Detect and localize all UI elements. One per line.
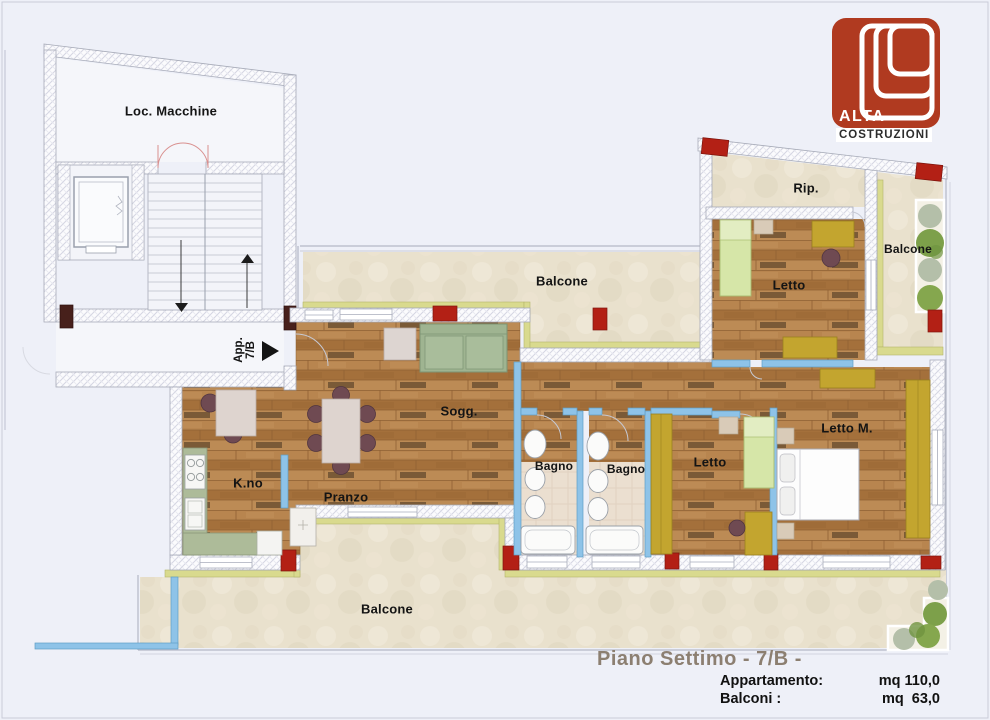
service-door bbox=[60, 305, 73, 328]
room-label-loc-macchine: Loc. Macchine bbox=[125, 104, 217, 119]
glass-railing bbox=[35, 643, 178, 649]
glass-railing bbox=[171, 577, 178, 645]
desk bbox=[812, 221, 854, 247]
room-label-pranzo: Pranzo bbox=[324, 490, 369, 505]
room-label-letto-mid: Letto bbox=[694, 455, 727, 470]
common-area bbox=[44, 44, 296, 390]
logo-subtitle: COSTRUZIONI bbox=[836, 128, 932, 142]
room-label-rip: Rip. bbox=[793, 181, 818, 196]
apartment-number-line2: 7/B bbox=[245, 337, 257, 363]
alta-logo: ALTA bbox=[832, 18, 940, 128]
balconies-area-value: mq 63,0 bbox=[882, 691, 940, 707]
staircase bbox=[148, 174, 262, 312]
apartment-area-value: mq 110,0 bbox=[879, 673, 940, 689]
apartment-number-line1: App. bbox=[233, 337, 245, 363]
plan-title: Piano Settimo - 7/B - bbox=[597, 648, 802, 671]
room-label-balcone-right: Balcone bbox=[884, 242, 932, 256]
corridor-floor bbox=[520, 362, 712, 411]
room-label-cucina: K.no bbox=[233, 476, 263, 491]
floorplan-page: Loc. Macchine Balcone Balcone Balcone Ri… bbox=[0, 0, 990, 720]
room-label-bagno-1: Bagno bbox=[535, 459, 573, 473]
room-label-letto-master: Letto M. bbox=[821, 421, 872, 436]
room-label-letto-top: Letto bbox=[773, 278, 806, 293]
chair bbox=[822, 249, 840, 267]
logo-name: ALTA bbox=[839, 108, 885, 126]
room-label-balcone-bottom: Balcone bbox=[361, 602, 413, 617]
elevator bbox=[58, 165, 144, 260]
sofa bbox=[420, 324, 507, 372]
planter-right bbox=[916, 200, 944, 312]
balconies-area-label: Balconi : bbox=[720, 691, 781, 707]
apartment-number-label: App. 7/B bbox=[233, 337, 257, 363]
room-label-bagno-2: Bagno bbox=[607, 462, 645, 476]
side-table bbox=[384, 328, 416, 360]
room-label-balcone-top: Balcone bbox=[536, 274, 588, 289]
apartment-area-label: Appartamento: bbox=[720, 673, 823, 689]
room-label-soggiorno: Sogg. bbox=[440, 404, 477, 419]
